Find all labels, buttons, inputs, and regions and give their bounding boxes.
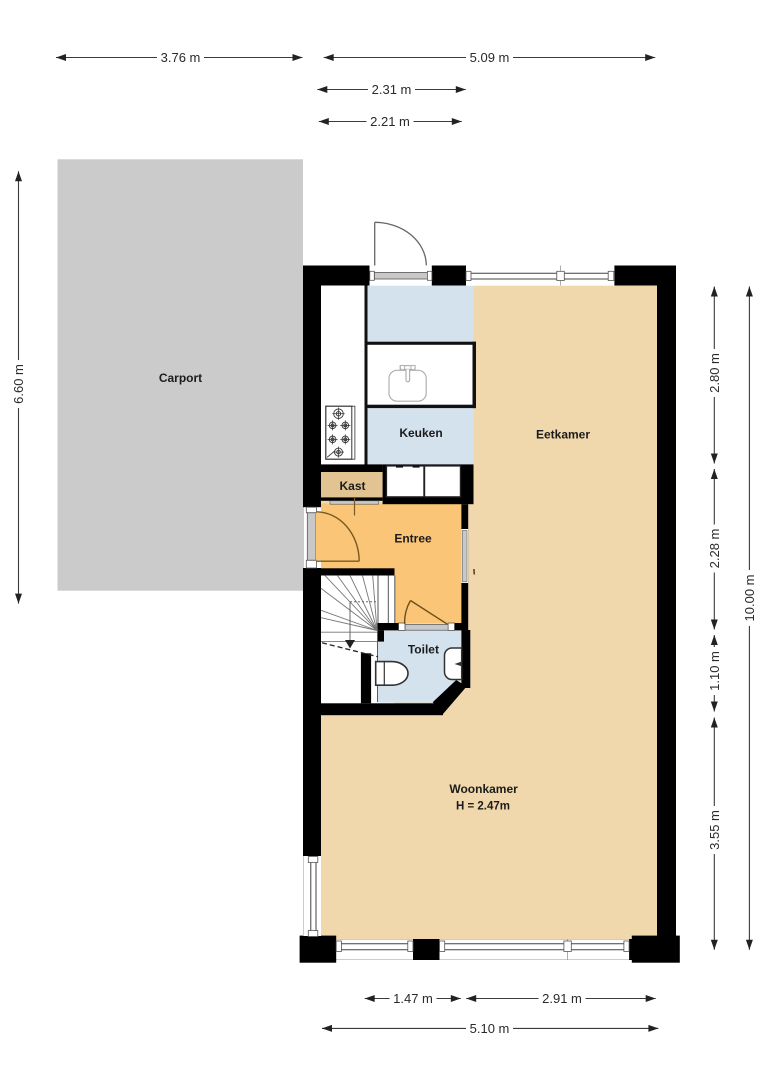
svg-text:5.10 m: 5.10 m	[470, 1021, 510, 1036]
svg-text:10.00 m: 10.00 m	[742, 575, 757, 622]
svg-text:2.31 m: 2.31 m	[372, 82, 412, 97]
svg-text:Entree: Entree	[394, 531, 432, 545]
svg-text:2.91 m: 2.91 m	[542, 991, 582, 1006]
svg-text:6.60 m: 6.60 m	[11, 364, 26, 404]
svg-text:Keuken: Keuken	[399, 426, 442, 440]
svg-text:3.76 m: 3.76 m	[161, 50, 201, 65]
svg-text:5.09 m: 5.09 m	[470, 50, 510, 65]
svg-text:1.10 m: 1.10 m	[707, 651, 722, 691]
svg-text:Woonkamer: Woonkamer	[449, 782, 518, 796]
svg-text:2.28 m: 2.28 m	[707, 529, 722, 569]
svg-text:1.47 m: 1.47 m	[393, 991, 433, 1006]
svg-text:3.55 m: 3.55 m	[707, 810, 722, 850]
svg-text:Eetkamer: Eetkamer	[536, 428, 590, 442]
svg-text:Carport: Carport	[159, 371, 202, 385]
svg-text:Kast: Kast	[339, 479, 365, 493]
svg-text:2.21 m: 2.21 m	[370, 114, 410, 129]
svg-text:2.80 m: 2.80 m	[707, 353, 722, 393]
svg-text:H = 2.47m: H = 2.47m	[456, 800, 510, 812]
svg-text:Toilet: Toilet	[408, 642, 439, 656]
